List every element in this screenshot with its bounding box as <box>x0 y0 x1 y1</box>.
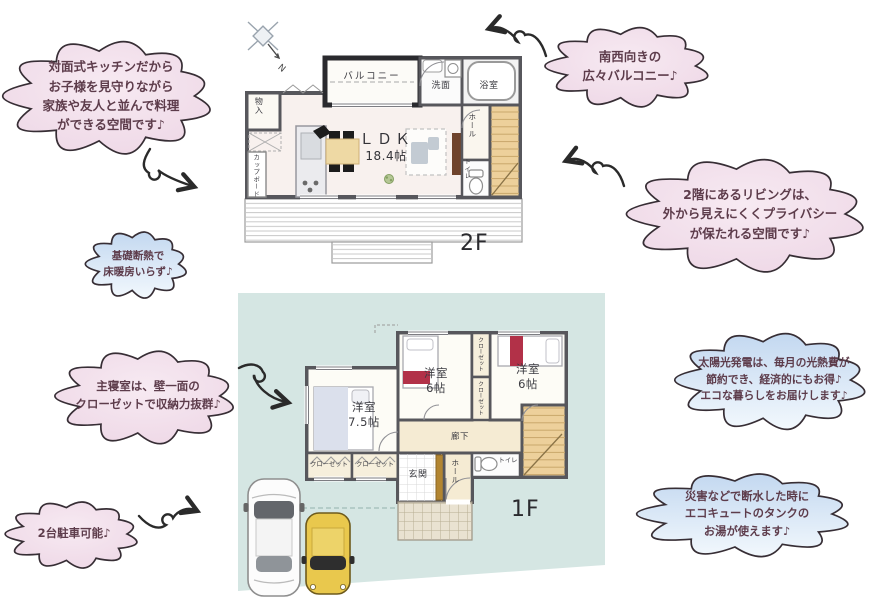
closet-lower1-label: クローゼット <box>305 461 353 469</box>
callout-living: 2階にあるリビングは、 外から見えにくくプライバシー が保たれる空間です♪ <box>628 146 872 282</box>
floor-plan-1f <box>238 293 605 596</box>
closet-upper2-label: クローゼット <box>475 381 483 419</box>
toilet-icon-2f <box>469 170 483 194</box>
arrow-balcony-icon <box>486 18 550 60</box>
callout-solar: 太陽光発電は、毎月の光熱費が 節約でき、経済的にもお得♪ エコな暮らしをお届けし… <box>676 322 872 438</box>
callout-balcony-text: 南西向きの 広々バルコニー♪ <box>546 18 714 114</box>
tv-board <box>452 133 461 175</box>
porch <box>398 502 472 540</box>
washroom-label: 洗面 <box>420 81 462 93</box>
bedroom2-label: 洋室 6帖 <box>408 366 464 396</box>
bathroom-label: 浴室 <box>464 81 514 93</box>
corridor-label: 廊下 <box>438 432 482 443</box>
floor-1f-label: 1F <box>511 496 540 525</box>
closet-lower2-label: クローゼット <box>351 461 399 469</box>
callout-parking: 2台駐車可能♪ <box>6 494 142 574</box>
callout-living-text: 2階にあるリビングは、 外から見えにくくプライバシー が保たれる空間です♪ <box>628 146 872 282</box>
hall-2f-label: ホール <box>467 113 477 159</box>
ldk-label: ＬＤＫ <box>356 130 416 150</box>
compass-n: N <box>276 63 288 75</box>
callout-insulation-text: 基礎断熱で 床暖房いらず♪ <box>86 224 190 304</box>
callout-solar-text: 太陽光発電は、毎月の光熱費が 節約でき、経済的にもお得♪ エコな暮らしをお届けし… <box>676 322 872 438</box>
washing-machine-icon <box>445 60 461 77</box>
callout-bedroom-text: 主寝室は、壁一面の クローゼットで収納力抜群♪ <box>56 340 240 452</box>
callout-balcony: 南西向きの 広々バルコニー♪ <box>546 18 714 114</box>
callout-disaster-text: 災害などで断水した時に エコキュートのタンクの お湯が使えます♪ <box>638 464 856 564</box>
car-white <box>244 479 305 596</box>
arrow-bedroom-icon <box>236 358 294 406</box>
ldk-size-label: 18.4帖 <box>356 149 416 165</box>
bedroom-master-label: 洋室 7.5帖 <box>332 400 396 430</box>
plant-icon <box>385 175 394 184</box>
cupboard-label: カップボード <box>251 154 259 198</box>
callout-insulation: 基礎断熱で 床暖房いらず♪ <box>86 224 190 304</box>
bedroom3-label: 洋室 6帖 <box>500 362 556 392</box>
callout-kitchen-text: 対面式キッチンだから お子様を見守りながら 家族や友人と並んで料理 ができる空間… <box>4 28 218 164</box>
callout-disaster: 災害などで断水した時に エコキュートのタンクの お湯が使えます♪ <box>638 464 856 564</box>
floorplan-flyer: N <box>0 0 873 611</box>
balcony-label: バルコニー <box>330 71 414 83</box>
hall-1f-label: ホール <box>450 459 460 501</box>
callout-kitchen: 対面式キッチンだから お子様を見守りながら 家族や友人と並んで料理 ができる空間… <box>4 28 218 164</box>
toilet-1f-label: トイレ <box>494 457 522 465</box>
arrow-parking-icon <box>136 498 200 538</box>
storage-label: 物入 <box>253 97 263 127</box>
floor-2f-label: 2F <box>460 230 489 259</box>
arrow-kitchen-icon <box>140 146 204 194</box>
entrance-label: 玄関 <box>401 470 435 482</box>
toilet-2f-label: トイレ <box>462 158 470 186</box>
2f-stairs <box>490 105 520 197</box>
1f-stairs <box>522 405 566 477</box>
closet-upper1-label: クローゼット <box>475 337 483 375</box>
arrow-living-icon <box>562 148 628 190</box>
2f-storage <box>247 93 280 130</box>
compass-icon: N <box>248 22 287 75</box>
callout-bedroom: 主寝室は、壁一面の クローゼットで収納力抜群♪ <box>56 340 240 452</box>
callout-parking-text: 2台駐車可能♪ <box>6 494 142 574</box>
car-yellow <box>302 513 355 594</box>
